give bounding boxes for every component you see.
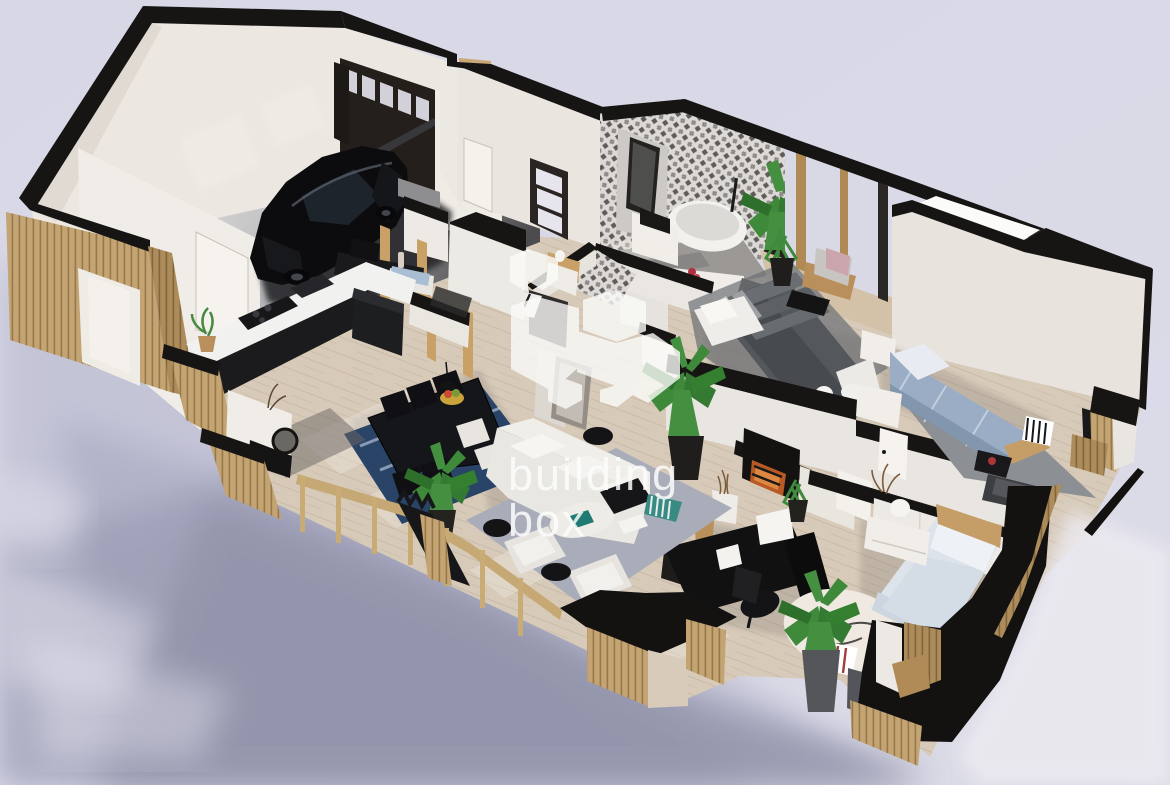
svg-text:building: building xyxy=(508,449,679,500)
svg-text:box: box xyxy=(508,495,587,546)
